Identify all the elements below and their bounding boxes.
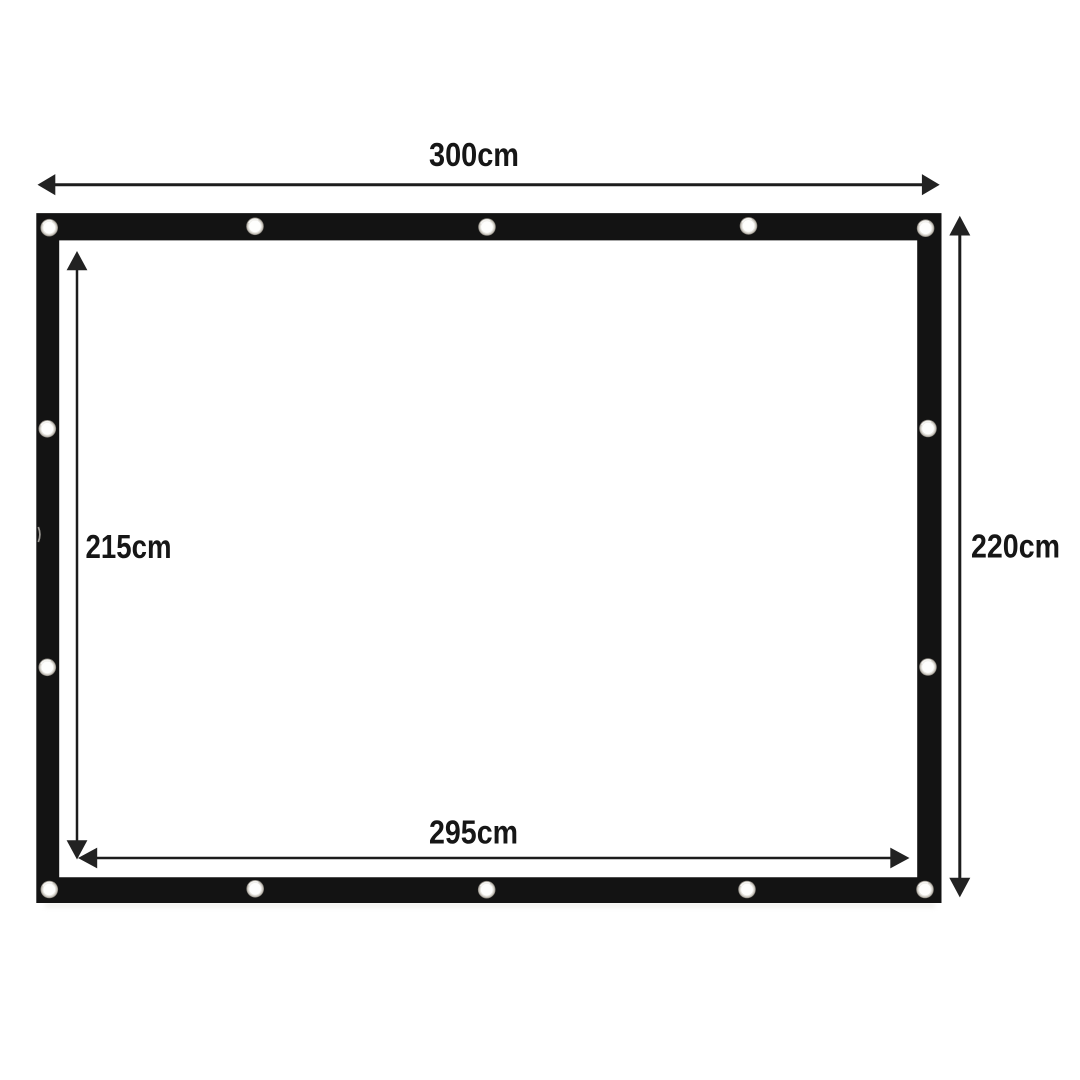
svg-text:220cm: 220cm	[971, 529, 1060, 566]
svg-text:295cm: 295cm	[429, 815, 518, 852]
svg-text:215cm: 215cm	[86, 529, 172, 566]
svg-text:300cm: 300cm	[429, 137, 519, 174]
